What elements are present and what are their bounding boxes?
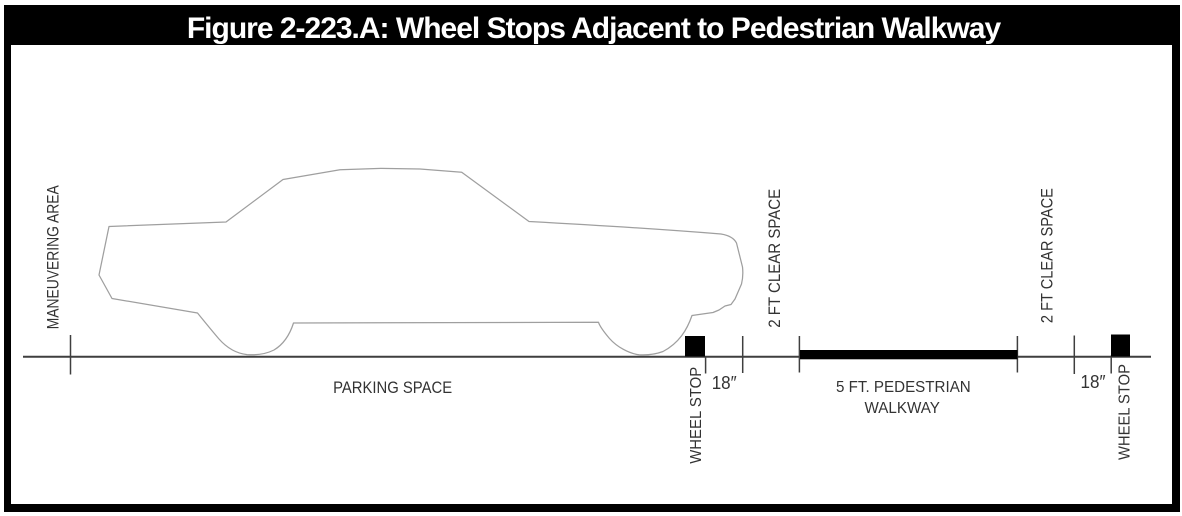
- svg-text:WHEEL STOP: WHEEL STOP: [688, 367, 705, 464]
- svg-text:PARKING SPACE: PARKING SPACE: [333, 378, 452, 397]
- svg-text:18″: 18″: [712, 373, 738, 393]
- svg-text:2 FT CLEAR SPACE: 2 FT CLEAR SPACE: [1038, 188, 1057, 323]
- svg-text:2 FT CLEAR SPACE: 2 FT CLEAR SPACE: [765, 189, 784, 328]
- svg-text:18″: 18″: [1081, 372, 1107, 392]
- svg-text:MANEUVERING AREA: MANEUVERING AREA: [44, 185, 63, 330]
- svg-text:5 FT. PEDESTRIAN: 5 FT. PEDESTRIAN: [836, 379, 971, 396]
- svg-text:WALKWAY: WALKWAY: [865, 400, 940, 417]
- svg-text:WHEEL STOP: WHEEL STOP: [1117, 364, 1134, 460]
